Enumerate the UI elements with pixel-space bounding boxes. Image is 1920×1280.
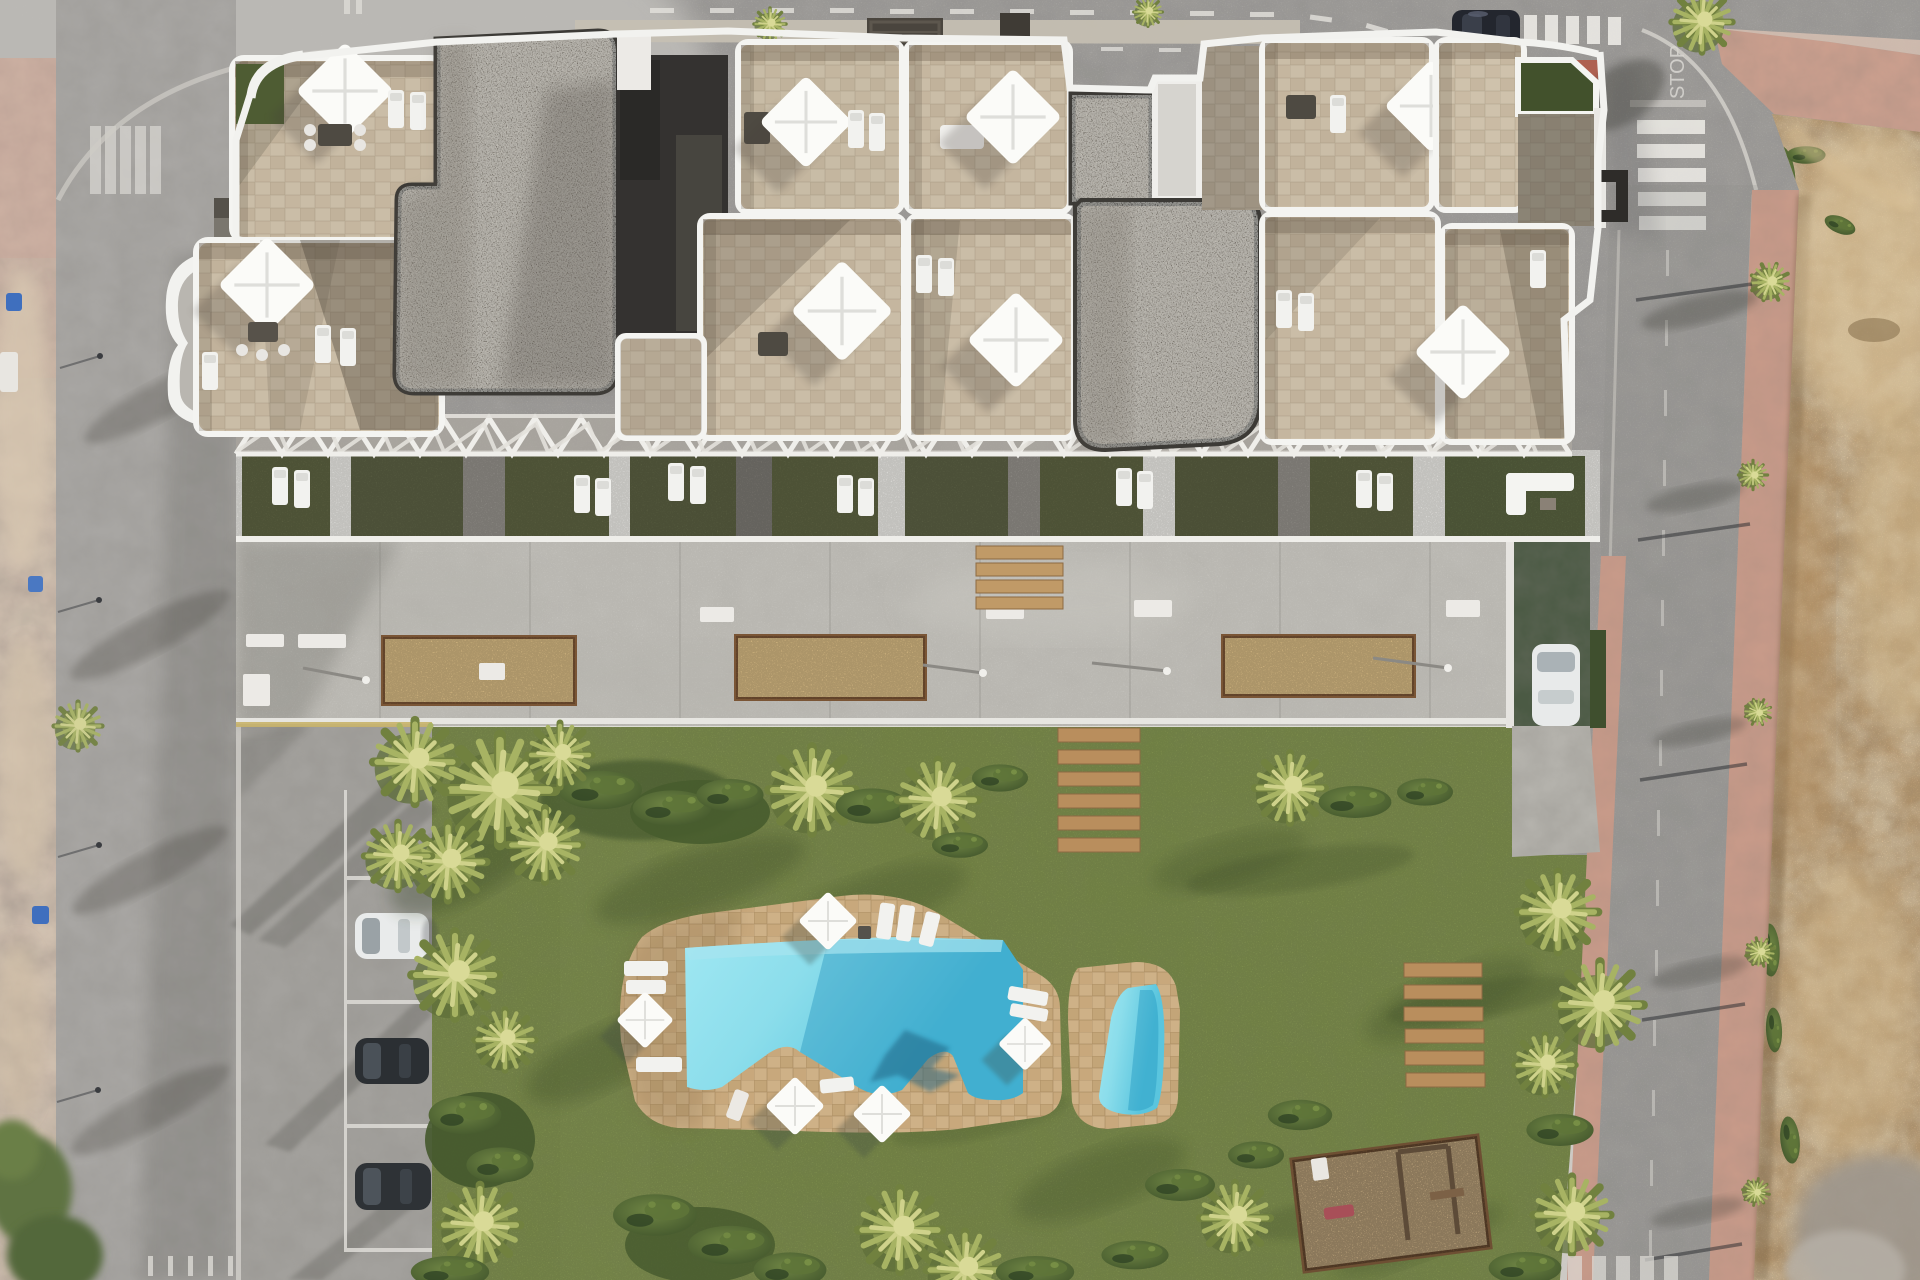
svg-text:STOP: STOP xyxy=(1667,45,1689,99)
